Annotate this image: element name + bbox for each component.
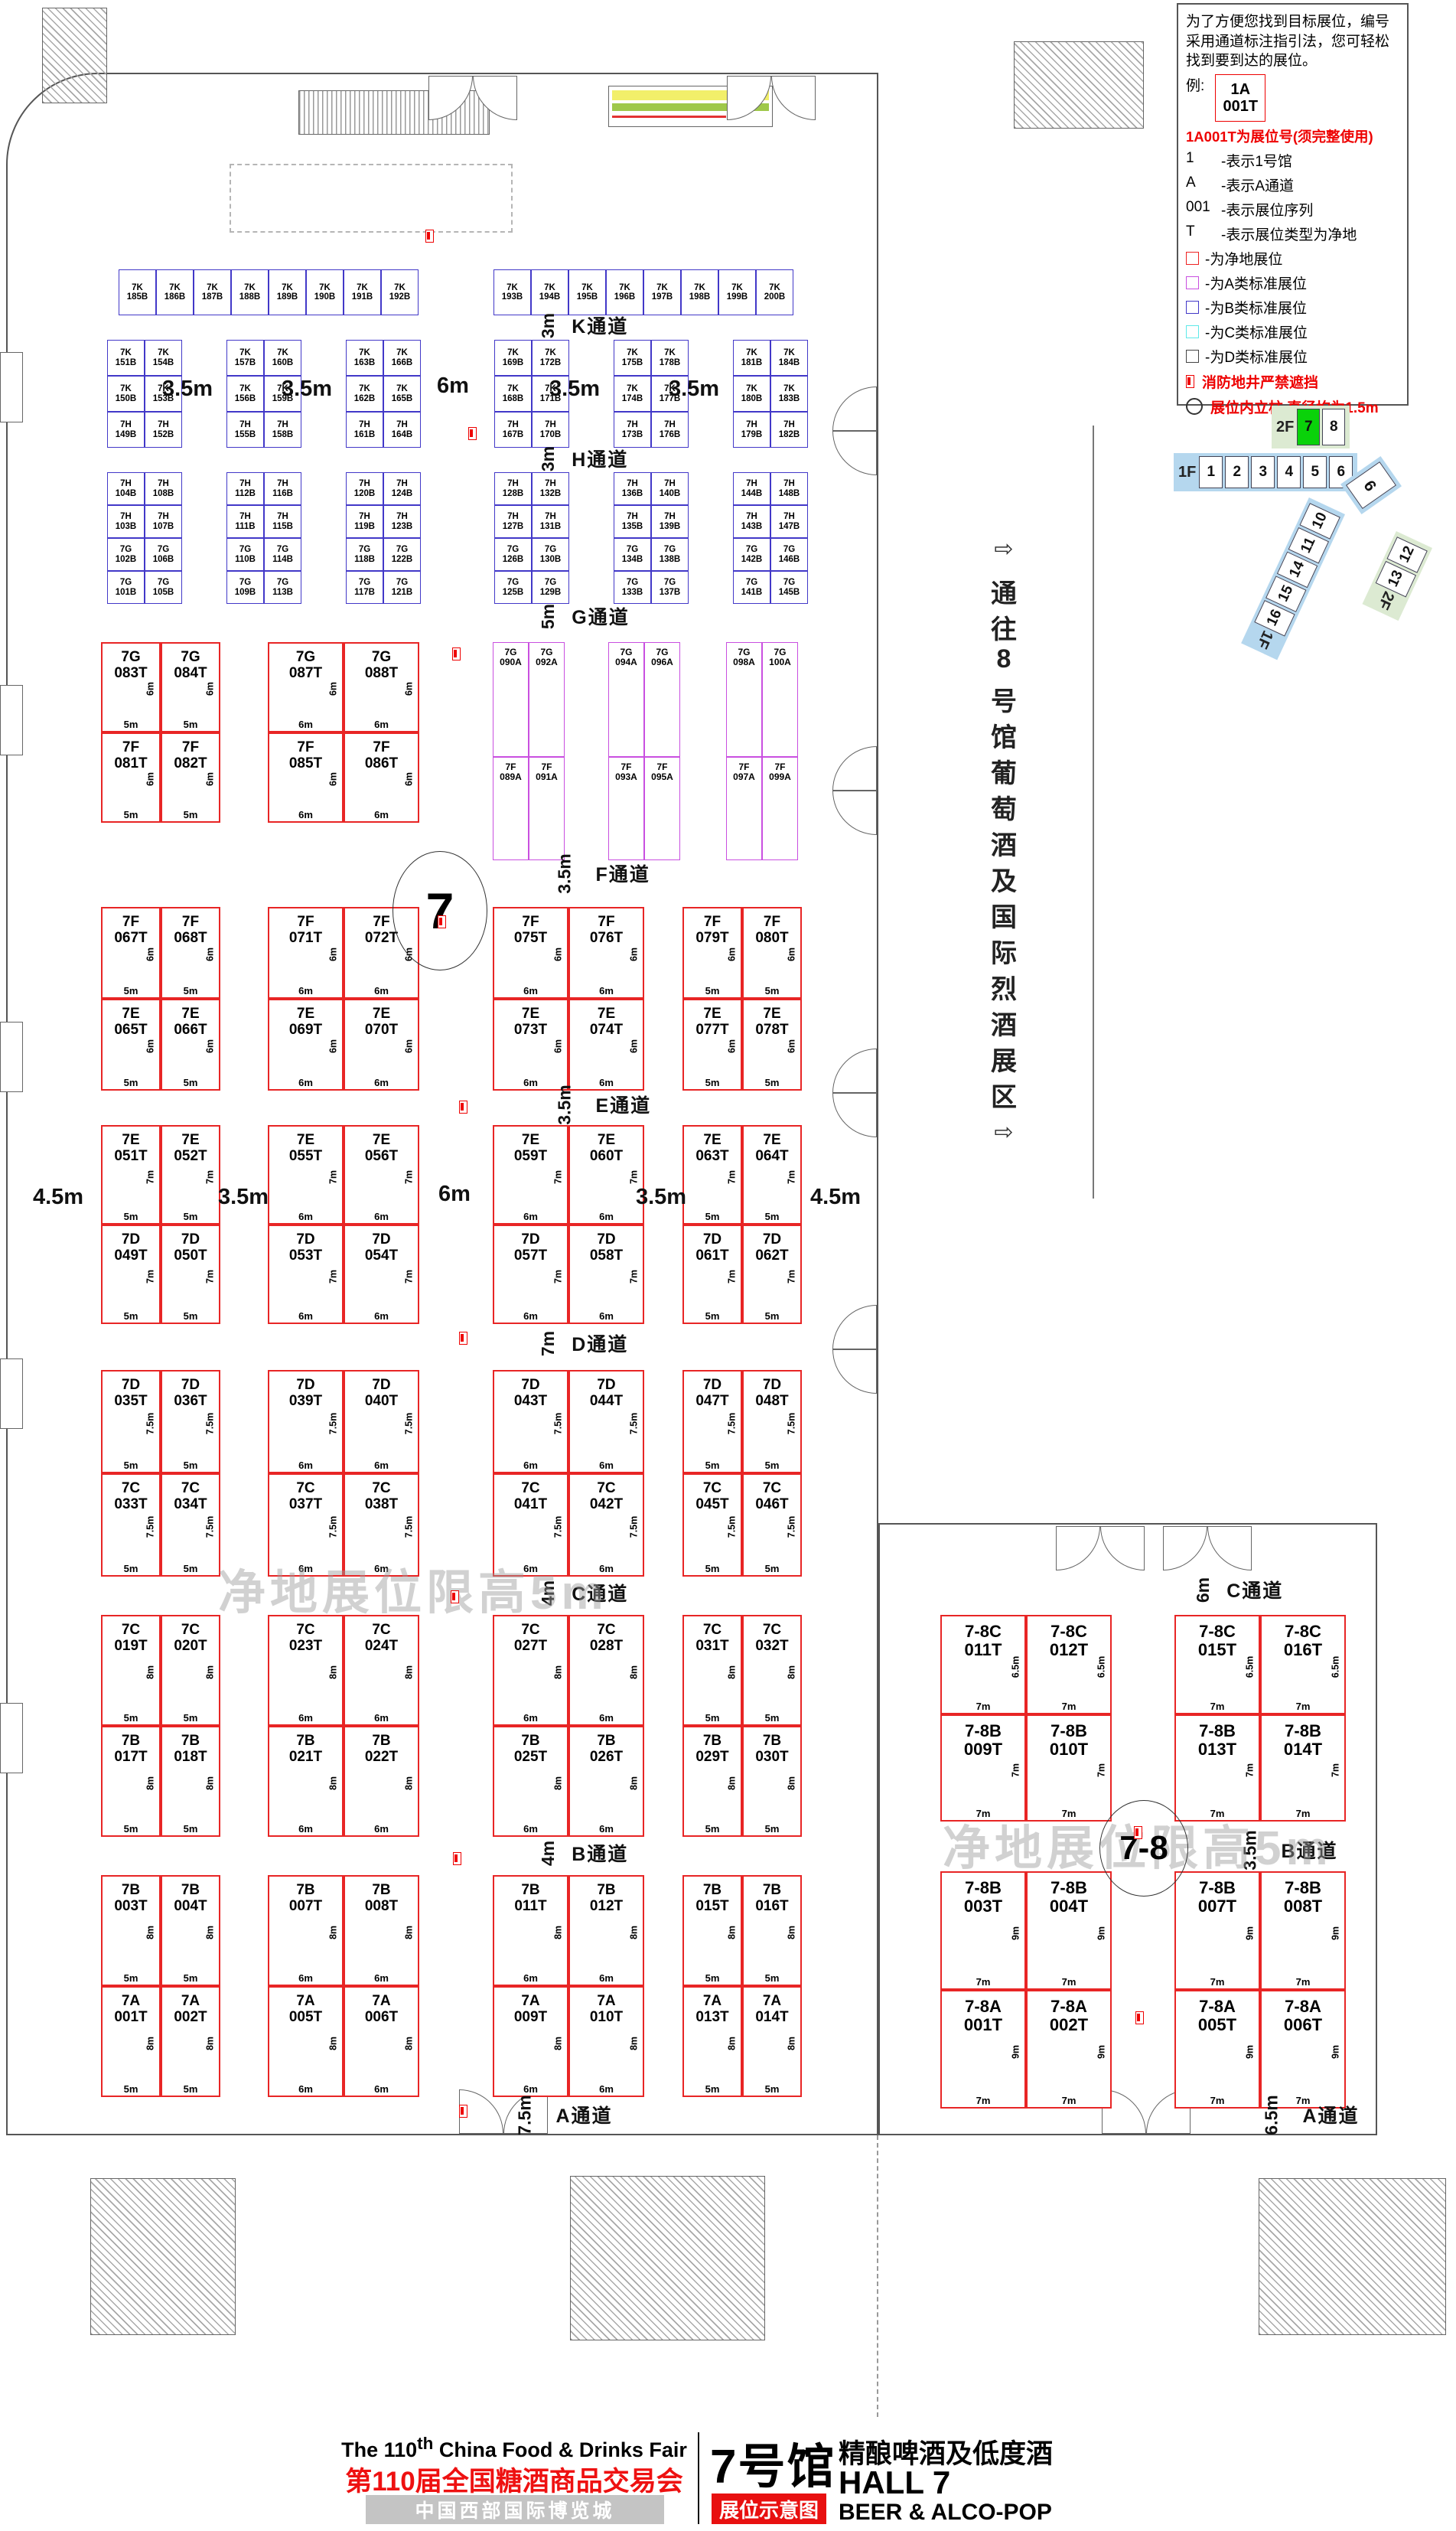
legend-code-row: A-表示A通道 <box>1186 174 1399 195</box>
booth-7F075T: 7F075T6m6m <box>493 907 568 999</box>
corridor-text-char: 号 <box>991 680 1017 718</box>
corridor-text-char: 及 <box>991 860 1017 898</box>
booth-7B012T: 7B012T6m8m <box>568 1875 644 1986</box>
booth-7-8B008T: 7-8B008T7m9m <box>1260 1871 1346 1990</box>
booth-7G125B: 7G125B <box>494 571 532 604</box>
legend-example-booth: 1A 001T <box>1215 74 1265 122</box>
booth-7H104B: 7H104B <box>107 472 145 505</box>
booth-7G100A: 7G100A <box>762 642 798 757</box>
booth-7E059T: 7E059T6m7m <box>493 1125 568 1225</box>
booth-7H108B: 7H108B <box>145 472 182 505</box>
booth-7B030T: 7B030T5m8m <box>742 1726 802 1837</box>
booth-7E077T: 7E077T5m6m <box>682 999 742 1091</box>
booth-7B004T: 7B004T5m8m <box>161 1875 220 1986</box>
booth-7H182B: 7H182B <box>770 412 808 448</box>
aisle-label-E通道: 3.5mE通道 <box>545 1088 651 1120</box>
booth-7K191B: 7K191B <box>344 269 381 315</box>
booth-7D036T: 7D036T5m7.5m <box>161 1370 220 1473</box>
booth-7K154B: 7K154B <box>145 340 182 376</box>
booth-7H143B: 7H143B <box>733 505 770 538</box>
booth-7K162B: 7K162B <box>346 376 383 412</box>
wall-pilaster <box>0 1022 23 1092</box>
booth-7G113B: 7G113B <box>264 571 301 604</box>
corridor-outer-wall <box>1093 426 1094 1199</box>
stairs-top-right <box>1014 41 1144 129</box>
dimension-label: 4.5m <box>33 1185 83 1210</box>
booth-7K198B: 7K198B <box>681 269 718 315</box>
booth-7-8B003T: 7-8B003T7m9m <box>940 1871 1026 1990</box>
fire-well-icon <box>1186 375 1194 388</box>
fire-well-icon <box>451 1590 459 1603</box>
booth-7E051T: 7E051T5m7m <box>101 1125 161 1225</box>
booth-7F091A: 7F091A <box>529 757 565 860</box>
booth-7C032T: 7C032T5m8m <box>742 1615 802 1726</box>
booth-7-8A006T: 7-8A006T7m9m <box>1260 1990 1346 2109</box>
corridor-text-char: 馆 <box>991 716 1017 754</box>
booth-7H128B: 7H128B <box>494 472 532 505</box>
booth-7H116B: 7H116B <box>264 472 301 505</box>
zone-circle-7: 7 <box>393 851 487 970</box>
floor-plan-canvas: 为了方便您找到目标展位，编号采用通道标注指引法，您可轻松找到要到达的展位。 例:… <box>0 0 1456 2531</box>
booth-7K187B: 7K187B <box>194 269 231 315</box>
booth-7B025T: 7B025T6m8m <box>493 1726 568 1837</box>
booth-7K181B: 7K181B <box>733 340 770 376</box>
corridor-text-char: 国 <box>991 896 1017 934</box>
minimap-2f-group: 2F 78 <box>1272 406 1350 448</box>
minimap-hall-2: 2 <box>1225 456 1249 488</box>
booth-7K163B: 7K163B <box>346 340 383 376</box>
booth-7G090A: 7G090A <box>493 642 529 757</box>
booth-7A006T: 7A006T6m8m <box>344 1986 419 2097</box>
booth-7H135B: 7H135B <box>614 505 651 538</box>
aisle-label-D通道: 7mD通道 <box>536 1327 628 1359</box>
aisle-label-A通道: 6.5mA通道 <box>1252 2099 1360 2131</box>
hall-title-cn: 7号馆 <box>710 2428 835 2497</box>
booth-7F099A: 7F099A <box>762 757 798 860</box>
legend-example-line2: 001T <box>1223 98 1258 115</box>
fire-well-icon <box>1134 1826 1142 1839</box>
booth-7E078T: 7E078T5m6m <box>742 999 802 1091</box>
corridor-text-char: 酒 <box>991 824 1017 862</box>
aisle-label-H通道: 3mH通道 <box>536 442 628 475</box>
booth-7E066T: 7E066T5m6m <box>161 999 220 1091</box>
dimension-label: 3.5m <box>669 377 719 402</box>
stairs-bottom-left <box>90 2178 236 2335</box>
booth-7K196B: 7K196B <box>606 269 643 315</box>
plan-badge: 展位示意图 <box>712 2493 826 2524</box>
dimension-label: 6m <box>438 1182 471 1207</box>
corridor-arrow-icon: ⇨ <box>994 1119 1013 1146</box>
booth-7-8C015T: 7-8C015T7m6.5m <box>1174 1615 1260 1714</box>
booth-7G134B: 7G134B <box>614 538 651 571</box>
fire-well-icon <box>453 1852 461 1865</box>
booth-7-8C016T: 7-8C016T7m6.5m <box>1260 1615 1346 1714</box>
section-divider-dashed <box>877 2135 878 2417</box>
booth-7G141B: 7G141B <box>733 571 770 604</box>
booth-7H158B: 7H158B <box>264 412 301 448</box>
booth-7H112B: 7H112B <box>226 472 264 505</box>
booth-7G133B: 7G133B <box>614 571 651 604</box>
booth-7C045T: 7C045T5m7.5m <box>682 1473 742 1577</box>
minimap-hall-1: 1 <box>1199 456 1223 488</box>
booth-7B011T: 7B011T6m8m <box>493 1875 568 1986</box>
booth-7-8B004T: 7-8B004T7m9m <box>1026 1871 1112 1990</box>
dimension-label: 3.5m <box>549 377 600 402</box>
aisle-label-C通道: 6mC通道 <box>1191 1574 1283 1606</box>
booth-7H107B: 7H107B <box>145 505 182 538</box>
booth-7K197B: 7K197B <box>643 269 681 315</box>
wall-pilaster <box>0 1358 23 1429</box>
minimap-diagonal-blue: 10111415161F <box>1241 497 1345 660</box>
booth-7C034T: 7C034T5m7.5m <box>161 1473 220 1577</box>
booth-7F097A: 7F097A <box>726 757 762 860</box>
minimap-hall-8: 8 <box>1322 409 1345 445</box>
booth-7G102B: 7G102B <box>107 538 145 571</box>
booth-7H120B: 7H120B <box>346 472 383 505</box>
booth-7D050T: 7D050T5m7m <box>161 1225 220 1324</box>
booth-7G142B: 7G142B <box>733 538 770 571</box>
legend-swatch-row: -为A类标准展位 <box>1186 272 1399 293</box>
corridor-text-char: 区 <box>991 1076 1017 1114</box>
booth-7F067T: 7F067T5m6m <box>101 907 161 999</box>
booth-7E069T: 7E069T6m6m <box>268 999 344 1091</box>
booth-7K174B: 7K174B <box>614 376 651 412</box>
booth-7G109B: 7G109B <box>226 571 264 604</box>
booth-7D043T: 7D043T6m7.5m <box>493 1370 568 1473</box>
booth-7-8A002T: 7-8A002T7m9m <box>1026 1990 1112 2109</box>
booth-7C020T: 7C020T5m8m <box>161 1615 220 1726</box>
booth-7F086T: 7F086T6m6m <box>344 732 419 823</box>
booth-7G110B: 7G110B <box>226 538 264 571</box>
stairs-top-left <box>42 8 107 103</box>
booth-7E074T: 7E074T6m6m <box>568 999 644 1091</box>
booth-7-8C012T: 7-8C012T7m6.5m <box>1026 1615 1112 1714</box>
service-bottom-right <box>1259 2178 1446 2335</box>
corridor-text-char: 烈 <box>991 968 1017 1006</box>
booth-7D035T: 7D035T5m7.5m <box>101 1370 161 1473</box>
fire-well-icon <box>468 427 477 440</box>
booth-7H144B: 7H144B <box>733 472 770 505</box>
aisle-label-K通道: 3mK通道 <box>536 309 628 341</box>
booth-7C023T: 7C023T6m8m <box>268 1615 344 1726</box>
legend-note: 1A001T为展位号(须完整使用) <box>1186 126 1399 146</box>
booth-7G101B: 7G101B <box>107 571 145 604</box>
booth-7F095A: 7F095A <box>644 757 680 860</box>
booth-7K169B: 7K169B <box>494 340 532 376</box>
booth-7G098A: 7G098A <box>726 642 762 757</box>
booth-7G121B: 7G121B <box>383 571 421 604</box>
venue-bar: 中国西部国际博览城 <box>366 2495 664 2524</box>
booth-7F080T: 7F080T5m6m <box>742 907 802 999</box>
booth-7A010T: 7A010T6m8m <box>568 1986 644 2097</box>
booth-7H132B: 7H132B <box>532 472 569 505</box>
minimap-hall-4: 4 <box>1277 456 1301 488</box>
legend-example-label: 例: <box>1186 74 1204 95</box>
corridor-text-char: 葡 <box>991 752 1017 790</box>
booth-7K186B: 7K186B <box>156 269 194 315</box>
booth-7D061T: 7D061T5m7m <box>682 1225 742 1324</box>
booth-7B016T: 7B016T5m8m <box>742 1875 802 1986</box>
dimension-label: 3.5m <box>162 377 213 402</box>
booth-7K192B: 7K192B <box>381 269 419 315</box>
booth-7F071T: 7F071T6m6m <box>268 907 344 999</box>
booth-7H119B: 7H119B <box>346 505 383 538</box>
booth-7D058T: 7D058T6m7m <box>568 1225 644 1324</box>
booth-7G083T: 7G083T5m6m <box>101 642 161 732</box>
booth-7E056T: 7E056T6m7m <box>344 1125 419 1225</box>
booth-7E060T: 7E060T6m7m <box>568 1125 644 1225</box>
booth-7H147B: 7H147B <box>770 505 808 538</box>
booth-7-8B007T: 7-8B007T7m9m <box>1174 1871 1260 1990</box>
hall-subtitle-en: BEER & ALCO-POP <box>839 2500 1052 2526</box>
corridor-arrow-icon: ⇨ <box>994 536 1013 563</box>
booth-7A005T: 7A005T6m8m <box>268 1986 344 2097</box>
booth-7F079T: 7F079T5m6m <box>682 907 742 999</box>
booth-7H139B: 7H139B <box>651 505 689 538</box>
legend-example-line1: 1A <box>1230 81 1250 98</box>
booth-7G106B: 7G106B <box>145 538 182 571</box>
aisle-label-F通道: 3.5mF通道 <box>545 857 650 889</box>
booth-7K188B: 7K188B <box>231 269 269 315</box>
minimap-hall-7: 7 <box>1297 409 1320 445</box>
booth-7E064T: 7E064T5m7m <box>742 1125 802 1225</box>
booth-7K178B: 7K178B <box>651 340 689 376</box>
legend-swatch-row: -为净地展位 <box>1186 248 1399 269</box>
fire-well-icon <box>425 230 434 243</box>
booth-7H123B: 7H123B <box>383 505 421 538</box>
corridor-text-char: 展 <box>991 1040 1017 1078</box>
zone-circle-7-8: 7-8 <box>1099 1800 1188 1897</box>
legend-intro: 为了方便您找到目标展位，编号采用通道标注指引法，您可轻松找到要到达的展位。 <box>1186 12 1399 71</box>
minimap-diagonal-green: 12132F <box>1362 531 1432 621</box>
booth-7F085T: 7F085T6m6m <box>268 732 344 823</box>
booth-7-8A001T: 7-8A001T7m9m <box>940 1990 1026 2109</box>
aisle-label-A通道: 7.5mA通道 <box>505 2099 613 2131</box>
minimap-1f-row: 1F 123456 <box>1174 453 1357 491</box>
aisle-label-B通道: 4mB通道 <box>536 1837 628 1869</box>
booth-7K193B: 7K193B <box>493 269 531 315</box>
booth-7E065T: 7E065T5m6m <box>101 999 161 1091</box>
fire-well-icon <box>1135 2011 1144 2024</box>
booth-7K172B: 7K172B <box>532 340 569 376</box>
dimension-label: 4.5m <box>810 1185 861 1210</box>
booth-7K183B: 7K183B <box>770 376 808 412</box>
booth-7C028T: 7C028T6m8m <box>568 1615 644 1726</box>
booth-7H124B: 7H124B <box>383 472 421 505</box>
fair-title-en: The 110th China Food & Drinks Fair <box>341 2434 687 2462</box>
booth-7G137B: 7G137B <box>651 571 689 604</box>
booth-7F082T: 7F082T5m6m <box>161 732 220 823</box>
booth-7G092A: 7G092A <box>529 642 565 757</box>
dashed-zone-top <box>230 164 513 233</box>
fire-well-icon <box>459 2105 467 2118</box>
booth-7H179B: 7H179B <box>733 412 770 448</box>
booth-7K168B: 7K168B <box>494 376 532 412</box>
corridor-text-char: 萄 <box>991 788 1017 826</box>
dimension-label: 3.5m <box>636 1185 686 1210</box>
booth-7H131B: 7H131B <box>532 505 569 538</box>
booth-7D062T: 7D062T5m7m <box>742 1225 802 1324</box>
title-superscript: th <box>417 2434 433 2453</box>
booth-7F076T: 7F076T6m6m <box>568 907 644 999</box>
corridor-text-char: 往 <box>991 608 1017 646</box>
booth-7G138B: 7G138B <box>651 538 689 571</box>
booth-7G088T: 7G088T6m6m <box>344 642 419 732</box>
booth-7C046T: 7C046T5m7.5m <box>742 1473 802 1577</box>
booth-7H115B: 7H115B <box>264 505 301 538</box>
booth-7B029T: 7B029T5m8m <box>682 1726 742 1837</box>
legend-fire-row: 消防地井严禁遮挡 <box>1186 371 1399 392</box>
booth-7K150B: 7K150B <box>107 376 145 412</box>
booth-7A001T: 7A001T5m8m <box>101 1986 161 2097</box>
minimap-1f-label: 1F <box>1178 464 1196 481</box>
booth-7K160B: 7K160B <box>264 340 301 376</box>
booth-7K190B: 7K190B <box>306 269 344 315</box>
booth-7H127B: 7H127B <box>494 505 532 538</box>
booth-7K166B: 7K166B <box>383 340 421 376</box>
booth-7H152B: 7H152B <box>145 412 182 448</box>
legend-box: 为了方便您找到目标展位，编号采用通道标注指引法，您可轻松找到要到达的展位。 例:… <box>1177 3 1409 406</box>
fire-well-icon <box>459 1332 467 1345</box>
booth-7D044T: 7D044T6m7.5m <box>568 1370 644 1473</box>
booth-7E073T: 7E073T6m6m <box>493 999 568 1091</box>
booth-7B003T: 7B003T5m8m <box>101 1875 161 1986</box>
booth-7D054T: 7D054T6m7m <box>344 1225 419 1324</box>
booth-7H136B: 7H136B <box>614 472 651 505</box>
booth-7H111B: 7H111B <box>226 505 264 538</box>
corridor-text-char: 通 <box>991 572 1017 610</box>
legend-code-row: 1-表示1号馆 <box>1186 150 1399 171</box>
legend-code-list: 1-表示1号馆A-表示A通道001-表示展位序列T-表示展位类型为净地 <box>1186 150 1399 244</box>
fire-well-icon <box>452 647 461 660</box>
booth-7G084T: 7G084T5m6m <box>161 642 220 732</box>
booth-7K184B: 7K184B <box>770 340 808 376</box>
booth-7G122B: 7G122B <box>383 538 421 571</box>
dimension-label: 3.5m <box>218 1185 269 1210</box>
booth-7K194B: 7K194B <box>531 269 568 315</box>
dimension-label: 6m <box>437 373 469 399</box>
legend-swatch-row: -为C类标准展位 <box>1186 321 1399 342</box>
booth-7E063T: 7E063T5m7m <box>682 1125 742 1225</box>
booth-7K185B: 7K185B <box>119 269 156 315</box>
wall-pilaster <box>0 1703 23 1773</box>
booth-7D047T: 7D047T5m7.5m <box>682 1370 742 1473</box>
booth-7E070T: 7E070T6m6m <box>344 999 419 1091</box>
booth-7K156B: 7K156B <box>226 376 264 412</box>
booth-7H164B: 7H164B <box>383 412 421 448</box>
booth-7G118B: 7G118B <box>346 538 383 571</box>
booth-7B021T: 7B021T6m8m <box>268 1726 344 1837</box>
booth-7D039T: 7D039T6m7.5m <box>268 1370 344 1473</box>
hall-title-en: HALL 7 <box>839 2464 950 2501</box>
booth-7G126B: 7G126B <box>494 538 532 571</box>
booth-7F081T: 7F081T5m6m <box>101 732 161 823</box>
minimap-2f-label: 2F <box>1276 419 1294 436</box>
minimap-hall-3: 3 <box>1251 456 1275 488</box>
legend-swatch-row: -为B类标准展位 <box>1186 297 1399 318</box>
booth-7A002T: 7A002T5m8m <box>161 1986 220 2097</box>
booth-7C024T: 7C024T6m8m <box>344 1615 419 1726</box>
booth-7K200B: 7K200B <box>756 269 793 315</box>
booth-7B015T: 7B015T5m8m <box>682 1875 742 1986</box>
corridor-text-char: 8 <box>997 644 1011 674</box>
booth-7G094A: 7G094A <box>608 642 644 757</box>
booth-7K175B: 7K175B <box>614 340 651 376</box>
booth-7H176B: 7H176B <box>651 412 689 448</box>
booth-7A009T: 7A009T6m8m <box>493 1986 568 2097</box>
booth-7B017T: 7B017T5m8m <box>101 1726 161 1837</box>
title-divider <box>698 2432 699 2524</box>
booth-7-8A005T: 7-8A005T7m9m <box>1174 1990 1260 2109</box>
legend-fire-note: 消防地井严禁遮挡 <box>1202 371 1318 392</box>
booth-7F068T: 7F068T5m6m <box>161 907 220 999</box>
booth-7H140B: 7H140B <box>651 472 689 505</box>
booth-7H167B: 7H167B <box>494 412 532 448</box>
booth-7K195B: 7K195B <box>568 269 606 315</box>
booth-7H161B: 7H161B <box>346 412 383 448</box>
booth-7E052T: 7E052T5m7m <box>161 1125 220 1225</box>
booth-7G145B: 7G145B <box>770 571 808 604</box>
booth-7C027T: 7C027T6m8m <box>493 1615 568 1726</box>
booth-7B008T: 7B008T6m8m <box>344 1875 419 1986</box>
booth-7C031T: 7C031T5m8m <box>682 1615 742 1726</box>
dimension-label: 3.5m <box>282 377 332 402</box>
fire-well-icon <box>459 1101 467 1114</box>
booth-7G129B: 7G129B <box>532 571 569 604</box>
booth-7D053T: 7D053T6m7m <box>268 1225 344 1324</box>
booth-7B007T: 7B007T6m8m <box>268 1875 344 1986</box>
legend-code-row: 001-表示展位序列 <box>1186 199 1399 220</box>
minimap-hall-5: 5 <box>1303 456 1327 488</box>
booth-7A013T: 7A013T5m8m <box>682 1986 742 2097</box>
booth-7K151B: 7K151B <box>107 340 145 376</box>
booth-7-8B009T: 7-8B009T7m7m <box>940 1714 1026 1822</box>
booth-7D040T: 7D040T6m7.5m <box>344 1370 419 1473</box>
corridor-text-char: 酒 <box>991 1004 1017 1042</box>
corridor-text-char: 际 <box>991 932 1017 970</box>
booth-7K189B: 7K189B <box>269 269 306 315</box>
booth-7-8B013T: 7-8B013T7m7m <box>1174 1714 1260 1822</box>
booth-7-8B010T: 7-8B010T7m7m <box>1026 1714 1112 1822</box>
height-limit-watermark: 净地展位限高5m <box>218 1554 608 1623</box>
booth-7G117B: 7G117B <box>346 571 383 604</box>
fire-well-icon <box>438 915 446 928</box>
booth-7K165B: 7K165B <box>383 376 421 412</box>
booth-7B026T: 7B026T6m8m <box>568 1726 644 1837</box>
legend-code-row: T-表示展位类型为净地 <box>1186 223 1399 244</box>
service-bottom-center <box>570 2176 765 2340</box>
booth-7K157B: 7K157B <box>226 340 264 376</box>
booth-7G146B: 7G146B <box>770 538 808 571</box>
booth-7H148B: 7H148B <box>770 472 808 505</box>
booth-7G096A: 7G096A <box>644 642 680 757</box>
aisle-label-G通道: 5mG通道 <box>536 600 630 632</box>
legend-swatch-list: -为净地展位-为A类标准展位-为B类标准展位-为C类标准展位-为D类标准展位 <box>1186 248 1399 367</box>
booth-7G114B: 7G114B <box>264 538 301 571</box>
booth-7C033T: 7C033T5m7.5m <box>101 1473 161 1577</box>
booth-7D049T: 7D049T5m7m <box>101 1225 161 1324</box>
booth-7G087T: 7G087T6m6m <box>268 642 344 732</box>
booth-7A014T: 7A014T5m8m <box>742 1986 802 2097</box>
wall-pilaster <box>0 685 23 755</box>
booth-7H155B: 7H155B <box>226 412 264 448</box>
pillar-icon <box>1186 398 1203 415</box>
booth-7D057T: 7D057T6m7m <box>493 1225 568 1324</box>
booth-7B022T: 7B022T6m8m <box>344 1726 419 1837</box>
booth-7K199B: 7K199B <box>718 269 756 315</box>
booth-7D048T: 7D048T5m7.5m <box>742 1370 802 1473</box>
booth-7-8B014T: 7-8B014T7m7m <box>1260 1714 1346 1822</box>
